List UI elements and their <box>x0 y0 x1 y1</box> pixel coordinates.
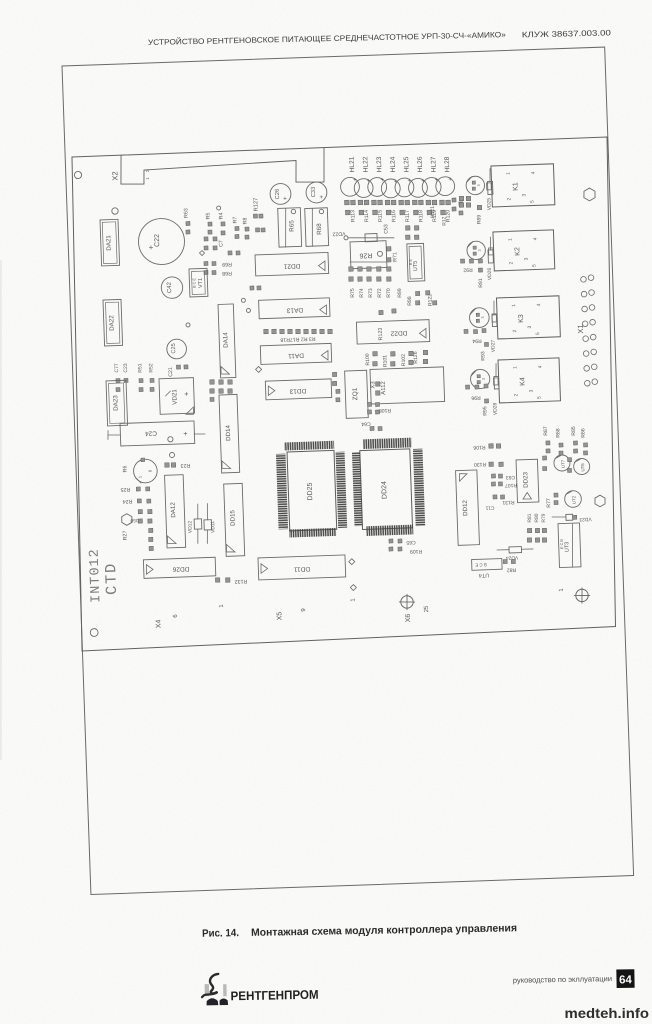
svg-text:+: + <box>283 195 287 202</box>
svg-text:DD26: DD26 <box>172 565 189 573</box>
svg-text:R106: R106 <box>473 444 486 450</box>
svg-text:R80: R80 <box>534 513 540 522</box>
svg-text:VD25: VD25 <box>486 198 492 211</box>
svg-text:3: 3 <box>478 249 482 251</box>
svg-text:K4: K4 <box>519 377 526 386</box>
svg-text:UT2: UT2 <box>571 495 576 504</box>
svg-text:C25: C25 <box>171 343 177 353</box>
svg-text:B E: B E <box>409 258 413 265</box>
svg-text:DD23: DD23 <box>522 471 530 488</box>
svg-text:R70: R70 <box>386 288 392 298</box>
svg-text:R101: R101 <box>382 355 388 368</box>
svg-text:руководство по экллуатации: руководство по экллуатации <box>513 974 612 985</box>
svg-text:R63: R63 <box>183 208 189 218</box>
svg-text:VD11: VD11 <box>210 521 216 533</box>
svg-text:VD27: VD27 <box>490 340 496 353</box>
svg-text:R72: R72 <box>377 288 383 298</box>
svg-text:C22: C22 <box>154 234 161 247</box>
svg-text:UT3: UT3 <box>564 542 570 553</box>
svg-text:3: 3 <box>482 378 486 380</box>
svg-text:VD28: VD28 <box>492 402 498 415</box>
svg-text:DA13: DA13 <box>286 306 303 314</box>
svg-text:DD22: DD22 <box>390 329 407 337</box>
svg-text:C24: C24 <box>145 429 158 436</box>
svg-text:DD24: DD24 <box>381 481 389 499</box>
svg-text:R98: R98 <box>407 296 413 306</box>
svg-text:R94: R94 <box>472 337 482 343</box>
svg-text:VD23: VD23 <box>579 516 592 522</box>
svg-text:UT5: UT5 <box>413 261 419 272</box>
svg-text:C42: C42 <box>167 281 173 293</box>
svg-text:C26: C26 <box>275 189 281 200</box>
svg-text:+: + <box>448 176 452 183</box>
svg-text:R130: R130 <box>474 461 487 467</box>
svg-text:R3 R2 R17R18: R3 R2 R17R18 <box>280 335 315 342</box>
svg-text:R91: R91 <box>478 278 484 288</box>
svg-text:R82: R82 <box>507 566 517 572</box>
svg-text:R96: R96 <box>471 394 481 400</box>
svg-text:25: 25 <box>424 605 430 613</box>
svg-text:R132: R132 <box>234 578 247 584</box>
svg-text:K1: K1 <box>512 182 519 191</box>
svg-text:VD22: VD22 <box>332 230 345 236</box>
svg-text:R127: R127 <box>253 197 259 211</box>
svg-text:X4: X4 <box>155 619 162 628</box>
svg-text:+: + <box>380 177 384 184</box>
svg-text:X1: X1 <box>576 324 585 333</box>
svg-text:DD21: DD21 <box>283 262 300 270</box>
svg-text:R113: R113 <box>350 210 356 222</box>
svg-text:R52: R52 <box>148 363 154 373</box>
svg-text:B C E: B C E <box>192 278 196 289</box>
svg-text:ZQ1: ZQ1 <box>352 387 359 400</box>
svg-text:R6: R6 <box>122 465 128 472</box>
svg-text:DA11: DA11 <box>288 352 304 360</box>
svg-text:HL21: HL21 <box>349 156 357 172</box>
svg-text:R102: R102 <box>401 354 407 367</box>
svg-text:РЕНТГЕНПРОМ: РЕНТГЕНПРОМ <box>230 988 318 1004</box>
svg-text:X5: X5 <box>276 612 283 621</box>
svg-text:HL22: HL22 <box>362 156 370 172</box>
svg-text:CTD: CTD <box>102 562 121 595</box>
svg-text:R99: R99 <box>397 288 403 298</box>
svg-text:DA21: DA21 <box>105 235 113 251</box>
svg-text:DD11: DD11 <box>293 565 310 573</box>
svg-text:C63: C63 <box>506 474 516 480</box>
svg-text:R115: R115 <box>377 210 383 222</box>
svg-text:R68: R68 <box>222 270 232 276</box>
svg-text:R85: R85 <box>571 426 577 436</box>
svg-text:C53: C53 <box>383 224 389 234</box>
svg-text:R118: R118 <box>418 210 424 222</box>
svg-text:DD25: DD25 <box>307 482 315 500</box>
svg-text:64: 64 <box>619 974 633 986</box>
svg-text:R89: R89 <box>476 215 482 225</box>
svg-text:R77: R77 <box>546 498 552 508</box>
svg-text:R116: R116 <box>391 210 397 222</box>
svg-text:DA14: DA14 <box>222 332 230 348</box>
svg-text:R114: R114 <box>364 210 370 222</box>
svg-text:R5: R5 <box>205 212 211 219</box>
svg-text:HL24: HL24 <box>389 156 397 172</box>
svg-text:R7: R7 <box>232 217 238 224</box>
svg-text:R51: R51 <box>137 363 143 373</box>
svg-text:+: + <box>148 243 153 252</box>
svg-text:DA22: DA22 <box>108 315 116 331</box>
svg-text:VD26: VD26 <box>487 267 493 280</box>
svg-text:R126: R126 <box>413 351 419 364</box>
svg-text:R86: R86 <box>580 428 586 438</box>
svg-text:C11: C11 <box>485 504 494 510</box>
svg-text:R121: R121 <box>430 206 436 218</box>
svg-text:K2: K2 <box>514 247 521 256</box>
svg-text:R24: R24 <box>123 498 133 504</box>
svg-text:A112: A112 <box>381 380 387 394</box>
svg-text:R123: R123 <box>378 328 384 341</box>
svg-text:R81: R81 <box>527 513 533 522</box>
svg-text:HL25: HL25 <box>403 156 411 172</box>
svg-text:R88: R88 <box>555 428 561 438</box>
svg-text:C21: C21 <box>168 367 174 377</box>
svg-text:R25: R25 <box>120 486 130 492</box>
svg-text:R109: R109 <box>410 548 423 554</box>
svg-text:UT7: UT7 <box>560 459 565 468</box>
svg-text:DD14: DD14 <box>225 424 233 441</box>
svg-text:medteh.info: medteh.info <box>565 1005 650 1021</box>
svg-text:R87: R87 <box>543 426 549 436</box>
svg-text:3: 3 <box>481 316 485 318</box>
svg-text:R131: R131 <box>502 499 515 505</box>
svg-text:R71: R71 <box>392 252 398 262</box>
svg-text:R92: R92 <box>463 266 473 272</box>
svg-text:R12: R12 <box>441 216 447 226</box>
svg-text:C33: C33 <box>311 187 317 198</box>
svg-text:DD13: DD13 <box>289 387 306 395</box>
svg-text:X6: X6 <box>405 614 412 623</box>
svg-text:VD12: VD12 <box>187 521 193 534</box>
svg-text:R74: R74 <box>359 288 365 298</box>
svg-text:3: 3 <box>477 184 481 186</box>
svg-text:HL27: HL27 <box>430 156 438 172</box>
svg-text:Рис. 14.: Рис. 14. <box>202 927 239 940</box>
svg-text:+: + <box>353 177 357 184</box>
svg-text:R107: R107 <box>505 482 517 488</box>
svg-text:R26: R26 <box>359 251 372 258</box>
svg-text:VD21: VD21 <box>171 389 179 405</box>
svg-text:E C B: E C B <box>560 539 564 550</box>
svg-text:C23: C23 <box>123 363 129 373</box>
svg-text:UT4: UT4 <box>479 572 490 578</box>
svg-text:UT6: UT6 <box>580 463 585 472</box>
svg-text:R73: R73 <box>368 288 374 298</box>
svg-text:R27: R27 <box>122 530 128 540</box>
svg-text:HL26: HL26 <box>417 156 425 172</box>
svg-text:DA23: DA23 <box>112 395 120 411</box>
svg-text:R23: R23 <box>180 462 190 468</box>
svg-text:C65: C65 <box>406 539 416 545</box>
svg-text:R65: R65 <box>288 220 295 232</box>
svg-text:R75: R75 <box>350 288 356 298</box>
svg-text:DD15: DD15 <box>229 509 237 526</box>
svg-text:R108: R108 <box>379 407 392 413</box>
svg-text:HL28: HL28 <box>444 156 452 172</box>
svg-text:R100: R100 <box>365 353 371 366</box>
svg-text:VT1: VT1 <box>198 278 204 288</box>
svg-text:050: 050 <box>130 517 139 523</box>
svg-text:R93: R93 <box>480 351 486 361</box>
svg-text:DD12: DD12 <box>462 499 470 516</box>
svg-text:K3: K3 <box>518 314 525 323</box>
svg-text:R79: R79 <box>541 513 547 522</box>
svg-text:R8: R8 <box>242 217 248 224</box>
svg-text:HL23: HL23 <box>376 156 384 172</box>
svg-text:B C E: B C E <box>475 562 487 567</box>
svg-text:R68: R68 <box>316 223 323 235</box>
svg-text:C77: C77 <box>114 363 120 373</box>
svg-text:X2: X2 <box>110 171 119 180</box>
svg-text:+: + <box>319 194 323 201</box>
svg-text:C64: C64 <box>361 420 371 426</box>
svg-text:R4: R4 <box>218 212 224 219</box>
svg-text:R95: R95 <box>482 406 488 416</box>
svg-text:R117: R117 <box>405 210 411 222</box>
svg-text:DA12: DA12 <box>170 502 178 518</box>
svg-text:C7: C7 <box>218 240 224 247</box>
svg-text:R69: R69 <box>222 261 232 267</box>
